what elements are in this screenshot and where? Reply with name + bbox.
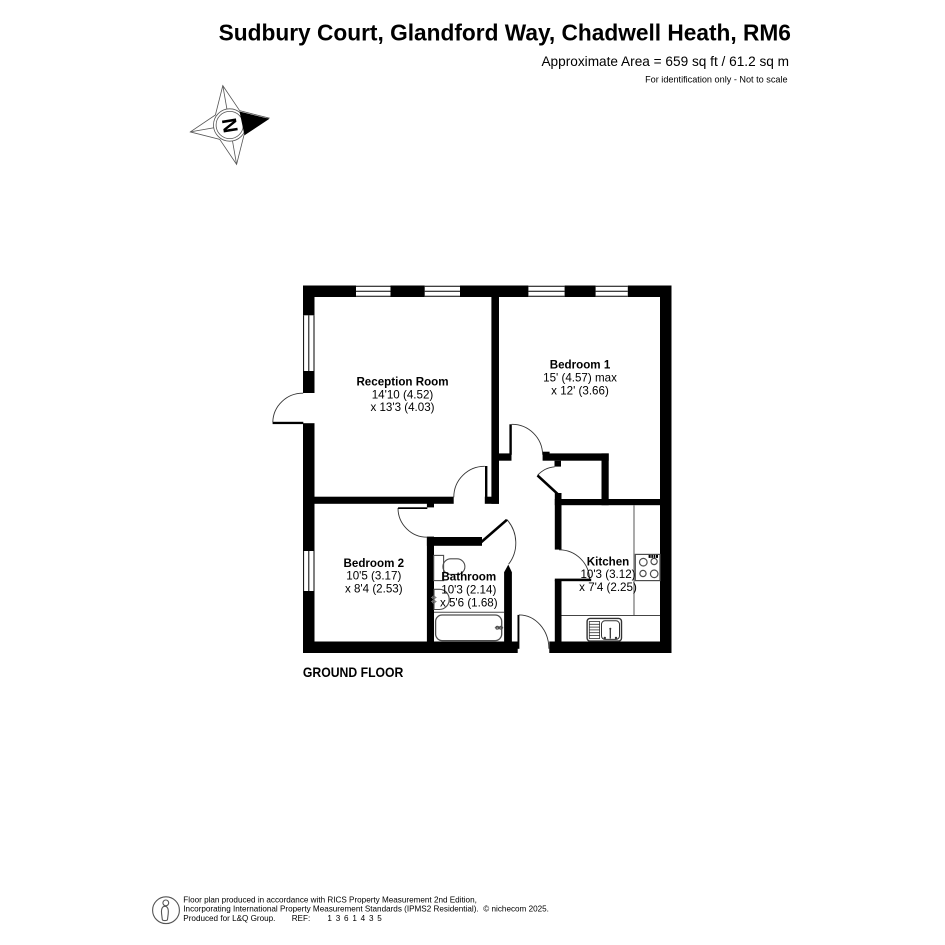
- svg-text:Incorporating International Pr: Incorporating International Property Mea…: [183, 905, 478, 914]
- svg-text:Bedroom 2: Bedroom 2: [344, 557, 405, 570]
- svg-text:Produced for L&Q Group.: Produced for L&Q Group.: [183, 914, 275, 923]
- svg-text:15' (4.57) max: 15' (4.57) max: [543, 372, 617, 385]
- svg-text:© nichecom 2025.: © nichecom 2025.: [483, 905, 549, 914]
- svg-text:x 7'4 (2.25): x 7'4 (2.25): [579, 581, 637, 594]
- svg-text:x 8'4 (2.53): x 8'4 (2.53): [345, 583, 403, 596]
- svg-text:x 12' (3.66): x 12' (3.66): [551, 384, 609, 397]
- svg-text:Approximate Area = 659 sq ft /: Approximate Area = 659 sq ft / 61.2 sq m: [541, 54, 789, 69]
- svg-text:Floor plan produced in accorda: Floor plan produced in accordance with R…: [183, 895, 477, 904]
- svg-text:14'10 (4.52): 14'10 (4.52): [372, 388, 434, 401]
- svg-text:10'3 (3.12): 10'3 (3.12): [580, 568, 635, 581]
- svg-text:10'3 (2.14): 10'3 (2.14): [441, 584, 496, 597]
- svg-text:x 13'3 (4.03): x 13'3 (4.03): [370, 401, 434, 414]
- svg-text:Bedroom 1: Bedroom 1: [550, 359, 611, 372]
- svg-text:For identification only - Not: For identification only - Not to scale: [645, 74, 788, 84]
- svg-text:1361435: 1361435: [327, 914, 385, 923]
- svg-text:x 5'6 (1.68): x 5'6 (1.68): [440, 597, 498, 610]
- svg-text:Bathroom: Bathroom: [441, 571, 496, 584]
- svg-text:10'5 (3.17): 10'5 (3.17): [346, 570, 401, 583]
- svg-text:GROUND FLOOR: GROUND FLOOR: [303, 665, 404, 680]
- svg-text:Kitchen: Kitchen: [587, 556, 630, 569]
- svg-text:Reception Room: Reception Room: [356, 376, 448, 389]
- svg-text:Sudbury Court, Glandford Way,: Sudbury Court, Glandford Way, Chadwell H…: [219, 20, 791, 46]
- svg-text:REF:: REF:: [292, 914, 311, 923]
